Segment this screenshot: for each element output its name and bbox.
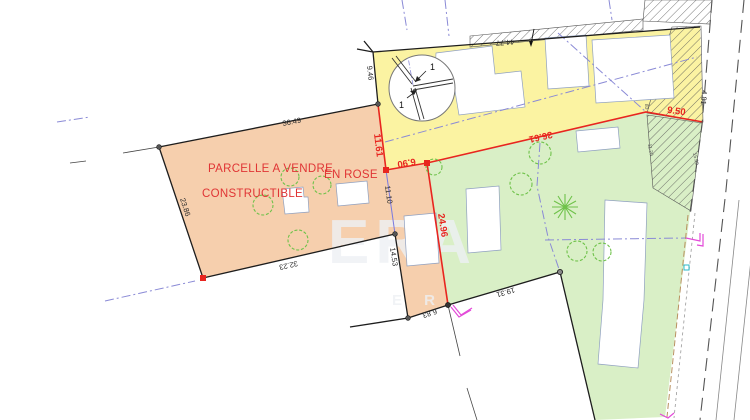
boundary-line <box>70 161 86 163</box>
boundary-line <box>467 388 477 420</box>
sale-label-line1: PARCELLE A VENDRE <box>208 163 333 175</box>
sale-label-line3: CONSTRUCTIBLE <box>202 188 303 200</box>
boundary-marker <box>406 316 411 321</box>
building-footprint <box>336 181 369 206</box>
guide-line <box>57 117 90 122</box>
boundary-marker-red <box>424 160 430 166</box>
guide-line <box>445 0 449 36</box>
building-footprint <box>598 200 647 368</box>
detail-ref-label: 1 <box>430 62 435 72</box>
watermark-line2: E R <box>392 292 444 309</box>
boundary-marker <box>393 232 398 237</box>
gate-symbol <box>686 233 700 241</box>
boundary-marker-red <box>200 275 206 281</box>
building-footprint <box>404 213 439 266</box>
utility-marker <box>684 265 689 270</box>
dim-label: 4.81 <box>699 90 709 105</box>
boundary-line <box>350 318 408 327</box>
boundary-line <box>448 305 460 356</box>
dim-label: 44.77 <box>495 37 514 47</box>
building-footprint <box>592 35 674 103</box>
dim-label-small: 83 <box>643 104 649 110</box>
sale-label-line2: EN ROSE <box>324 169 378 181</box>
building-footprint <box>545 35 589 89</box>
guide-line <box>402 0 407 30</box>
dim-label: 32.23 <box>278 259 298 272</box>
building-footprint <box>576 127 620 152</box>
boundary-marker <box>376 102 381 107</box>
guide-line <box>105 281 195 301</box>
watermark-line1: ERA <box>328 208 477 277</box>
dim-label: 9.46 <box>365 65 375 80</box>
boundary-marker <box>445 302 450 307</box>
buildings <box>282 35 674 368</box>
detail-bubble: 1 1 <box>389 55 455 121</box>
boundary-line <box>123 147 159 153</box>
guide-line <box>609 0 612 20</box>
road-edge <box>734 250 750 420</box>
hatch-block-topright <box>643 0 712 24</box>
boundary-marker <box>157 145 162 150</box>
detail-ref-label: 1 <box>399 100 404 110</box>
boundary-marker-red <box>383 167 389 173</box>
cadastral-plan: ERA E R <box>0 0 750 420</box>
building-footprint <box>466 186 501 253</box>
boundary-marker <box>557 269 562 274</box>
road-edge <box>716 200 739 420</box>
